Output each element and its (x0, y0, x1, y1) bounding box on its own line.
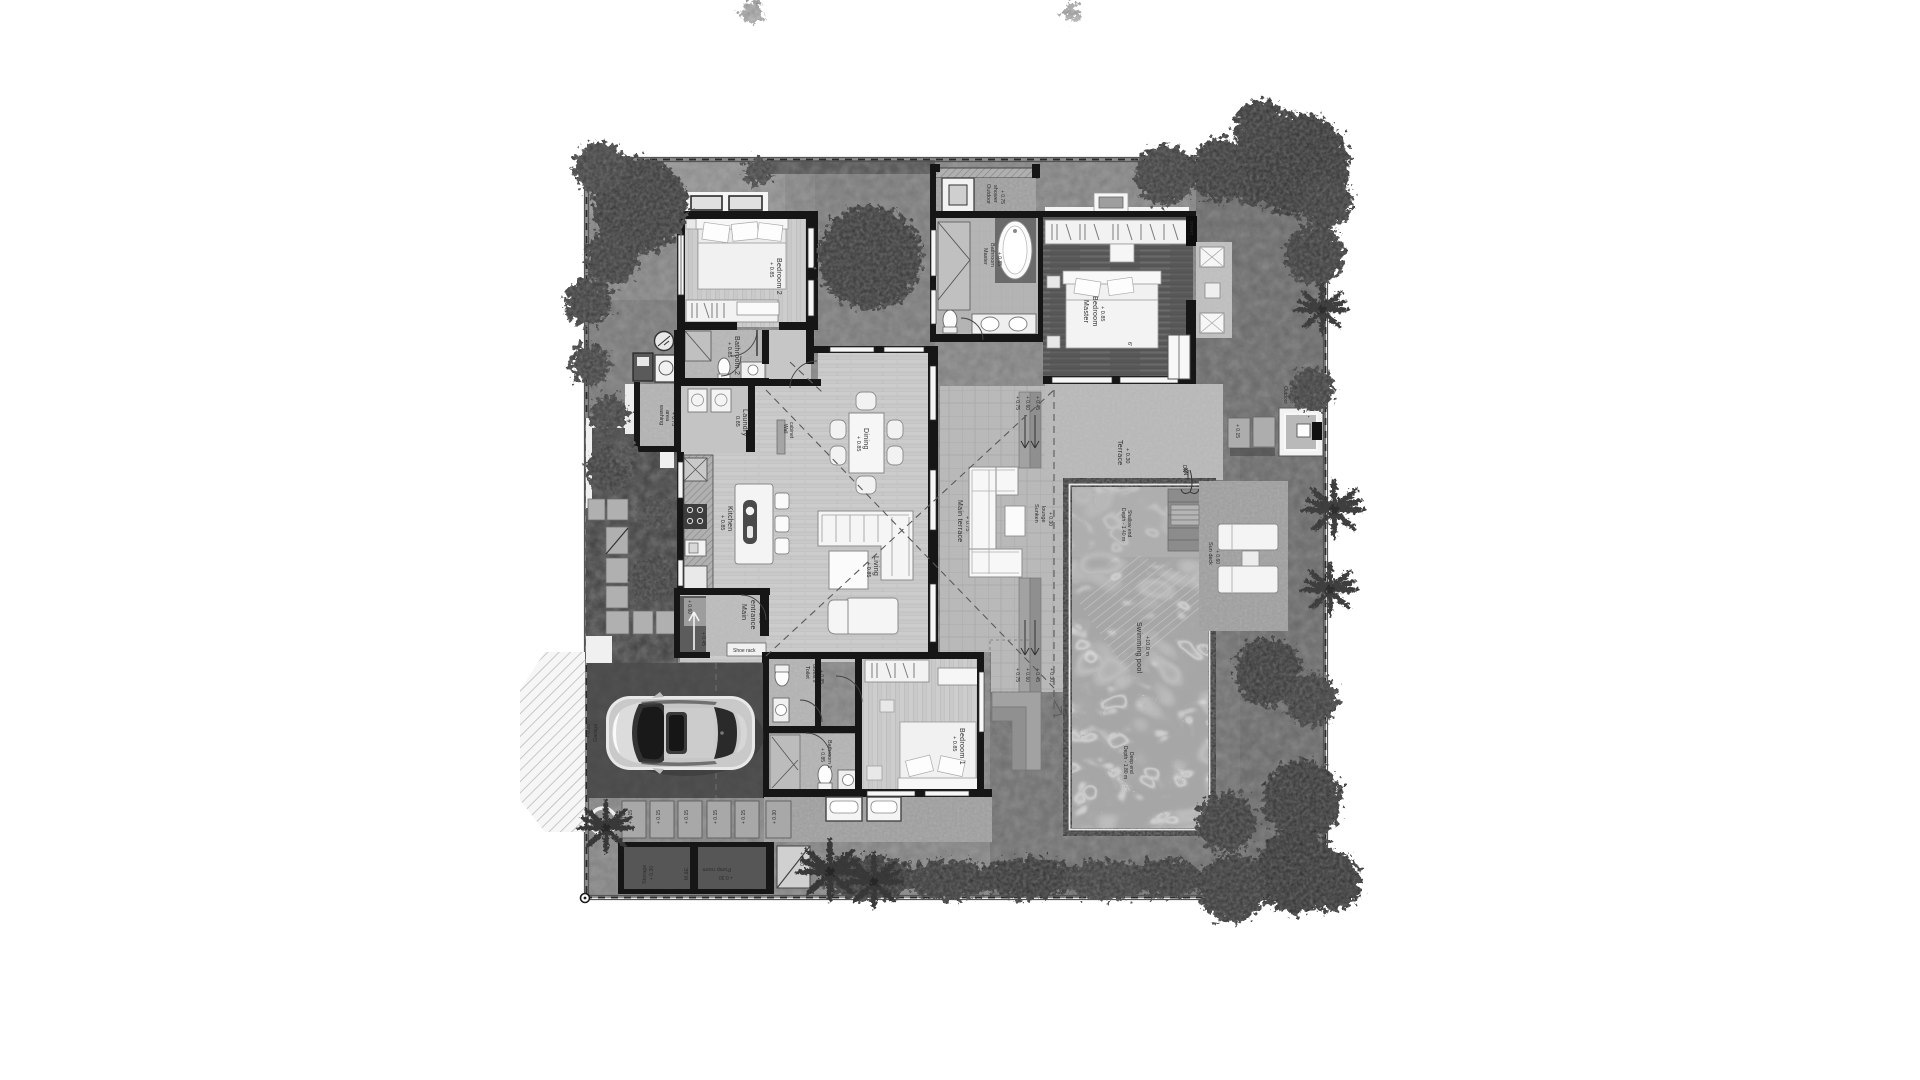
svg-text:+ 0.30: + 0.30 (649, 866, 655, 880)
svg-text:Deep end: Deep end (1128, 752, 1134, 774)
svg-text:Master: Master (982, 248, 988, 265)
svg-text:Pump room: Pump room (702, 866, 731, 872)
svg-text:Main terrace: Main terrace (956, 500, 963, 543)
svg-text:Living: Living (872, 556, 879, 576)
svg-text:+ 0.60: + 0.60 (1024, 396, 1030, 410)
svg-text:+ 0.85: + 0.85 (768, 262, 774, 277)
svg-text:+ 0.30: + 0.30 (1048, 668, 1054, 682)
svg-text:entrance: entrance (749, 600, 756, 630)
svg-text:Outdoor: Outdoor (985, 184, 991, 204)
svg-text:+ 0.20: + 0.20 (586, 724, 592, 738)
svg-text:Outdoor: Outdoor (1282, 386, 1288, 404)
svg-text:START: START (1189, 221, 1194, 236)
svg-text:6': 6' (1126, 342, 1132, 346)
svg-text:Sun deck: Sun deck (1207, 542, 1213, 565)
svg-text:Bedroom 2: Bedroom 2 (775, 258, 782, 295)
svg-text:Garage: Garage (593, 724, 599, 742)
svg-text:Sunken: Sunken (1033, 504, 1039, 523)
svg-text:DN: DN (1182, 468, 1188, 476)
svg-text:Terrace: Terrace (1116, 440, 1123, 465)
svg-text:+ 0.45: + 0.45 (700, 632, 706, 646)
svg-text:Bedroom 1: Bedroom 1 (958, 728, 965, 765)
svg-text:area: area (664, 410, 670, 422)
svg-text:+ 0.30: + 0.30 (1047, 512, 1053, 526)
svg-text:washing: washing (658, 404, 664, 425)
svg-text:+ 0.75: + 0.75 (1014, 396, 1020, 410)
svg-text:Shoe rack: Shoe rack (733, 648, 756, 654)
svg-text:Shallow end: Shallow end (1126, 510, 1132, 537)
svg-text:+ 0.30: + 0.30 (772, 810, 778, 824)
svg-text:Main: Main (740, 604, 747, 620)
svg-text:Bedroom: Bedroom (1091, 296, 1098, 327)
svg-text:+10.0 m: +10.0 m (1144, 636, 1150, 656)
svg-text:Storage: Storage (642, 865, 648, 884)
svg-text:+ 0.75: + 0.75 (999, 190, 1005, 204)
svg-text:+ 0.85: + 0.85 (1099, 306, 1105, 321)
svg-text:+ 0.15: + 0.15 (713, 810, 719, 824)
svg-text:0.85: 0.85 (734, 416, 740, 427)
svg-text:+ 0.15: + 0.15 (684, 810, 690, 824)
svg-text:cabinet: cabinet (788, 422, 794, 439)
svg-text:+ 0.85: + 0.85 (726, 342, 732, 357)
svg-text:+ 0.60: + 0.60 (1214, 550, 1220, 564)
svg-text:Kitchen: Kitchen (726, 506, 733, 531)
svg-text:+ 0.85: + 0.85 (996, 252, 1002, 266)
svg-text:+ 0.60: + 0.60 (1024, 668, 1030, 682)
svg-text:Depth - 1.80 m: Depth - 1.80 m (1122, 746, 1128, 779)
svg-text:Toilet: Toilet (804, 666, 810, 679)
svg-text:+ 0.15: + 0.15 (1234, 424, 1240, 438)
svg-text:+ 0.85: + 0.85 (819, 748, 825, 762)
svg-text:Dining: Dining (862, 428, 869, 450)
svg-text:+ 0.85: + 0.85 (719, 515, 725, 530)
svg-text:+ 0.15: + 0.15 (741, 810, 747, 824)
svg-text:+ 0.30: + 0.30 (1124, 448, 1130, 463)
svg-text:+ 0.30: + 0.30 (719, 874, 733, 880)
svg-text:lounge: lounge (1040, 506, 1046, 523)
svg-text:Bathroom: Bathroom (989, 243, 995, 267)
svg-text:M.&E.: M.&E. (684, 866, 690, 880)
svg-text:+ 0.85: + 0.85 (855, 436, 861, 451)
svg-text:Master: Master (1082, 300, 1089, 324)
svg-text:+ 0.85: + 0.85 (951, 736, 957, 751)
svg-text:+ 0.15: + 0.15 (656, 810, 662, 824)
svg-text:Swimming pool: Swimming pool (1135, 622, 1142, 674)
svg-text:Depth - 1.40 m: Depth - 1.40 m (1120, 508, 1126, 541)
svg-text:+ 0.75: + 0.75 (1014, 668, 1020, 682)
svg-text:shower: shower (992, 185, 998, 203)
svg-text:+ 0.60: + 0.60 (686, 600, 692, 614)
svg-text:Wall: Wall (782, 424, 788, 434)
